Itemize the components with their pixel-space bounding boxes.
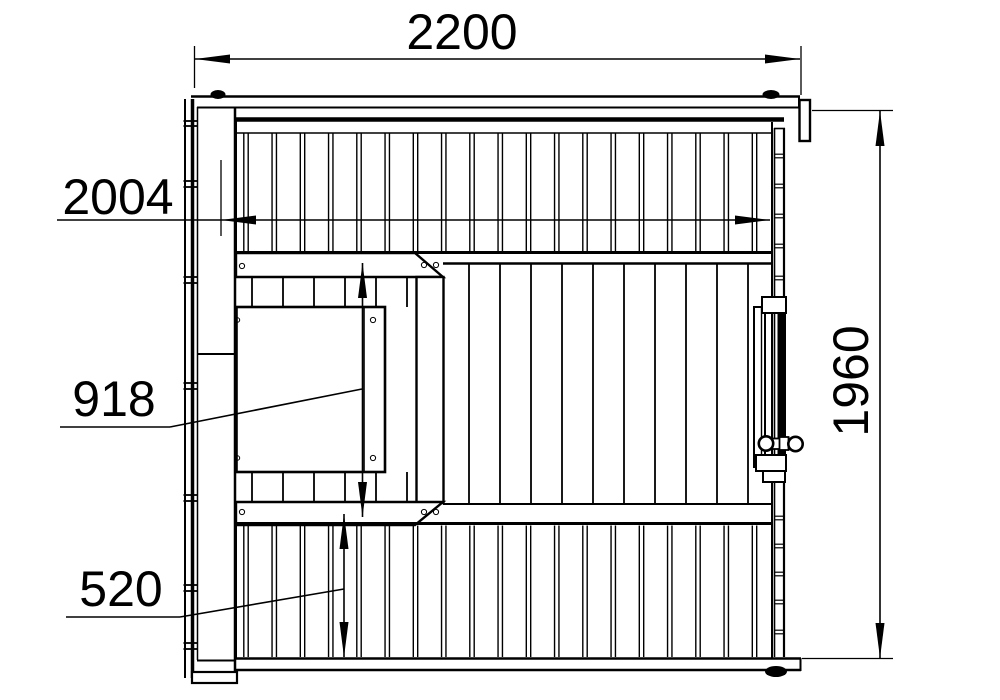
left-wall-foot — [192, 672, 237, 683]
arrowhead-left-icon — [195, 55, 230, 64]
arrowhead-right-icon — [765, 55, 800, 64]
leader-line — [180, 589, 344, 617]
arrowhead-down-icon — [876, 623, 885, 658]
arrowhead-down-icon — [340, 622, 349, 657]
door-handle-knob-inner — [759, 436, 773, 450]
top-wall-dowel-left — [211, 90, 226, 99]
dim-platform-depth-label: 918 — [72, 371, 155, 427]
enclosure-top-rail — [236, 253, 443, 277]
arrowhead-left-icon — [221, 216, 256, 225]
dim-overall-depth: 1960 — [802, 111, 893, 659]
door-handle-knob-outer — [788, 437, 802, 451]
door-threshold-dowel — [765, 666, 787, 677]
door-frame-top-cap — [800, 100, 811, 141]
dim-inner-width-label: 2004 — [62, 169, 173, 225]
door-assembly — [754, 128, 803, 657]
enclosure-bottom-rail — [236, 502, 443, 525]
heater-enclosure — [235, 253, 443, 525]
dim-overall-depth-label: 1960 — [823, 325, 879, 436]
dim-lower-bench-depth-label: 520 — [79, 561, 162, 617]
drawing-canvas: 2200 2004 1960 918 — [0, 0, 1000, 700]
arrowhead-up-icon — [876, 111, 885, 146]
sauna-plan-drawing: 2200 2004 1960 918 — [0, 0, 1000, 700]
dim-overall-width: 2200 — [195, 4, 802, 95]
dim-overall-width-label: 2200 — [406, 4, 517, 60]
dimension-layer: 2200 2004 1960 918 — [57, 4, 893, 659]
top-wall-dowel-right — [763, 90, 780, 99]
door-frame-post-top-step — [762, 297, 786, 313]
dim-lower-bench-depth: 520 — [66, 514, 349, 657]
door-lock-step — [763, 471, 785, 482]
door-lock-case — [756, 455, 786, 471]
enclosure-side-board — [417, 277, 444, 503]
